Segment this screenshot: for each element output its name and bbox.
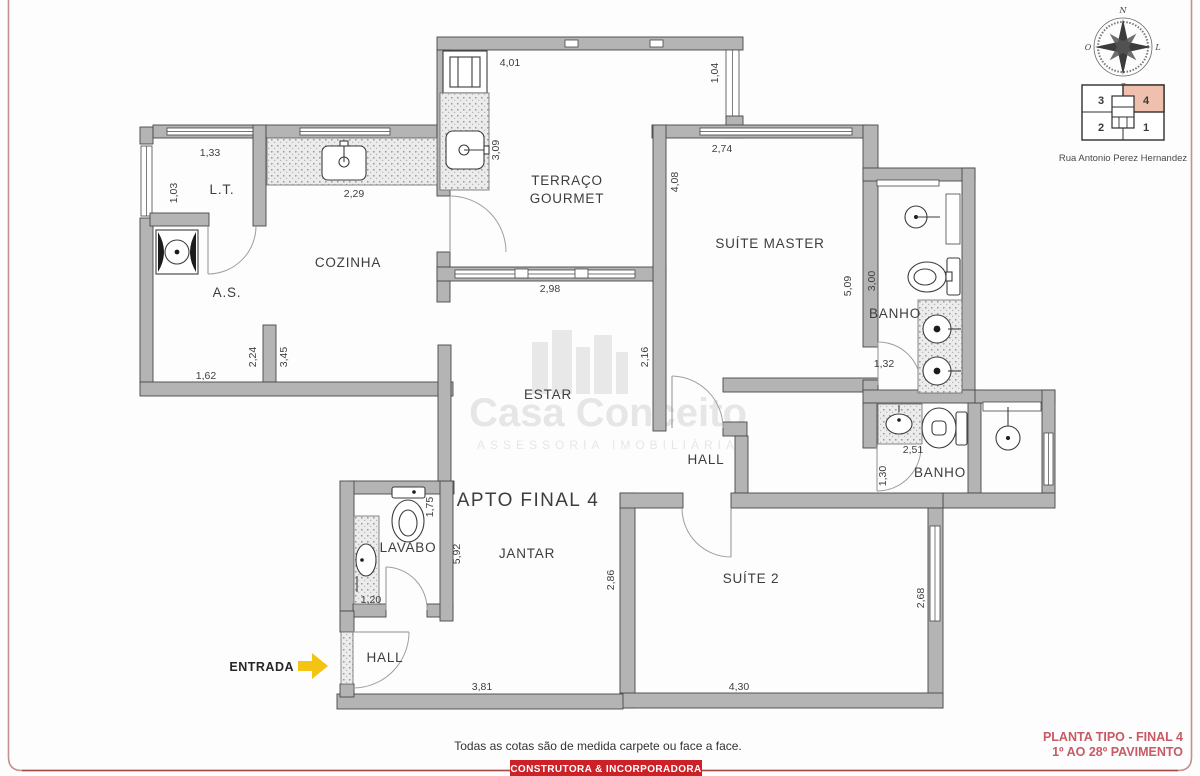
entrance-arrow-icon — [298, 653, 328, 679]
dim-1-62: 1,62 — [196, 370, 217, 382]
key-plan-unit-1: 1 — [1143, 122, 1149, 134]
dim-1-03: 1,03 — [168, 183, 180, 204]
room-label-suite2: SUÍTE 2 — [723, 571, 780, 586]
dim-3-00: 3,00 — [866, 271, 878, 292]
key-plan-unit-4: 4 — [1143, 95, 1150, 107]
room-label-apto: APTO FINAL 4 — [457, 490, 599, 511]
dim-1-30: 1,30 — [877, 466, 889, 487]
dim-2-86: 2,86 — [605, 570, 617, 591]
key-plan-unit-3: 3 — [1098, 95, 1104, 107]
master-toilet-icon — [908, 258, 960, 295]
key-plan: 3 4 2 1 Rua Antonio Perez Hernandez — [1059, 85, 1188, 164]
lavabo-toilet-icon — [392, 487, 425, 542]
room-label-as: A.S. — [213, 285, 242, 300]
dim-2-68: 2,68 — [915, 588, 927, 609]
room-label-hall: HALL — [688, 452, 725, 467]
kitchen-sink-icon — [322, 141, 366, 180]
gourmet-sink-icon — [446, 131, 489, 169]
dim-2-24: 2,24 — [247, 347, 259, 368]
dim-2-74: 2,74 — [712, 143, 733, 155]
watermark: Casa Conceito ASSESSORIA IMOBILIÁRIA — [469, 330, 747, 452]
compass-north-label: N — [1119, 6, 1128, 15]
dim-3-45: 3,45 — [278, 347, 290, 368]
master-shower-icon — [905, 206, 940, 228]
dim-2-16: 2,16 — [639, 347, 651, 368]
room-label-hall-entrada: HALL — [367, 650, 404, 665]
watermark-brand: Casa Conceito — [469, 391, 747, 435]
compass-west-label: O — [1085, 43, 1092, 52]
key-plan-unit-2: 2 — [1098, 122, 1104, 134]
entrance-label: ENTRADA — [229, 660, 294, 674]
dim-4-01: 4,01 — [500, 57, 521, 69]
room-label-banho2: BANHO — [914, 465, 966, 480]
room-label-suite-master: SUÍTE MASTER — [715, 236, 824, 251]
dim-2-29: 2,29 — [344, 188, 365, 200]
dim-5-92: 5,92 — [451, 544, 463, 565]
dim-1-33: 1,33 — [200, 147, 221, 159]
key-plan-street-label: Rua Antonio Perez Hernandez — [1059, 153, 1188, 164]
room-label-lavabo: LAVABO — [380, 540, 437, 555]
room-label-terraco-2: GOURMET — [530, 191, 605, 206]
dim-4-08: 4,08 — [669, 172, 681, 193]
dim-1-04: 1,04 — [709, 63, 721, 84]
floor-plan-canvas: Casa Conceito ASSESSORIA IMOBILIÁRIA — [0, 0, 1200, 776]
dim-1-75: 1,75 — [424, 497, 436, 518]
plan-title: PLANTA TIPO - FINAL 4 — [1043, 730, 1183, 744]
dim-4-30: 4,30 — [729, 681, 750, 693]
footer: Todas as cotas são de medida carpete ou … — [22, 730, 1183, 776]
room-label-cozinha: COZINHA — [315, 255, 381, 270]
banho2-shower-icon — [996, 407, 1020, 450]
plan-subtitle: 1º AO 28º PAVIMENTO — [1052, 745, 1183, 759]
floorplan-page: Casa Conceito ASSESSORIA IMOBILIÁRIA — [0, 0, 1200, 776]
laundry-tank-icon — [156, 230, 198, 274]
entrance-callout: ENTRADA — [229, 653, 328, 679]
room-label-lt: L.T. — [210, 182, 235, 197]
gourmet-cabinet-icon — [443, 51, 487, 93]
compass-rose-icon: N S O L — [1085, 6, 1161, 91]
room-label-estar: ESTAR — [524, 387, 572, 402]
room-label-jantar: JANTAR — [499, 546, 555, 561]
room-label-terraco-1: TERRAÇO — [531, 173, 603, 188]
dim-2-98: 2,98 — [540, 283, 561, 295]
dim-2-51: 2,51 — [903, 444, 924, 456]
dim-3-81: 3,81 — [472, 681, 493, 693]
footer-note: Todas as cotas são de medida carpete ou … — [454, 739, 742, 753]
dim-5-09: 5,09 — [842, 276, 854, 297]
watermark-tagline: ASSESSORIA IMOBILIÁRIA — [477, 437, 739, 452]
banho2-toilet-icon — [922, 408, 967, 448]
dim-1-32: 1,32 — [874, 358, 895, 370]
footer-banner-label: CONSTRUTORA & INCORPORADORA — [510, 764, 701, 775]
compass-east-label: L — [1154, 43, 1160, 52]
room-label-banho-master: BANHO — [869, 306, 921, 321]
dim-3-09: 3,09 — [490, 140, 502, 161]
dim-1-20: 1,20 — [361, 594, 382, 606]
